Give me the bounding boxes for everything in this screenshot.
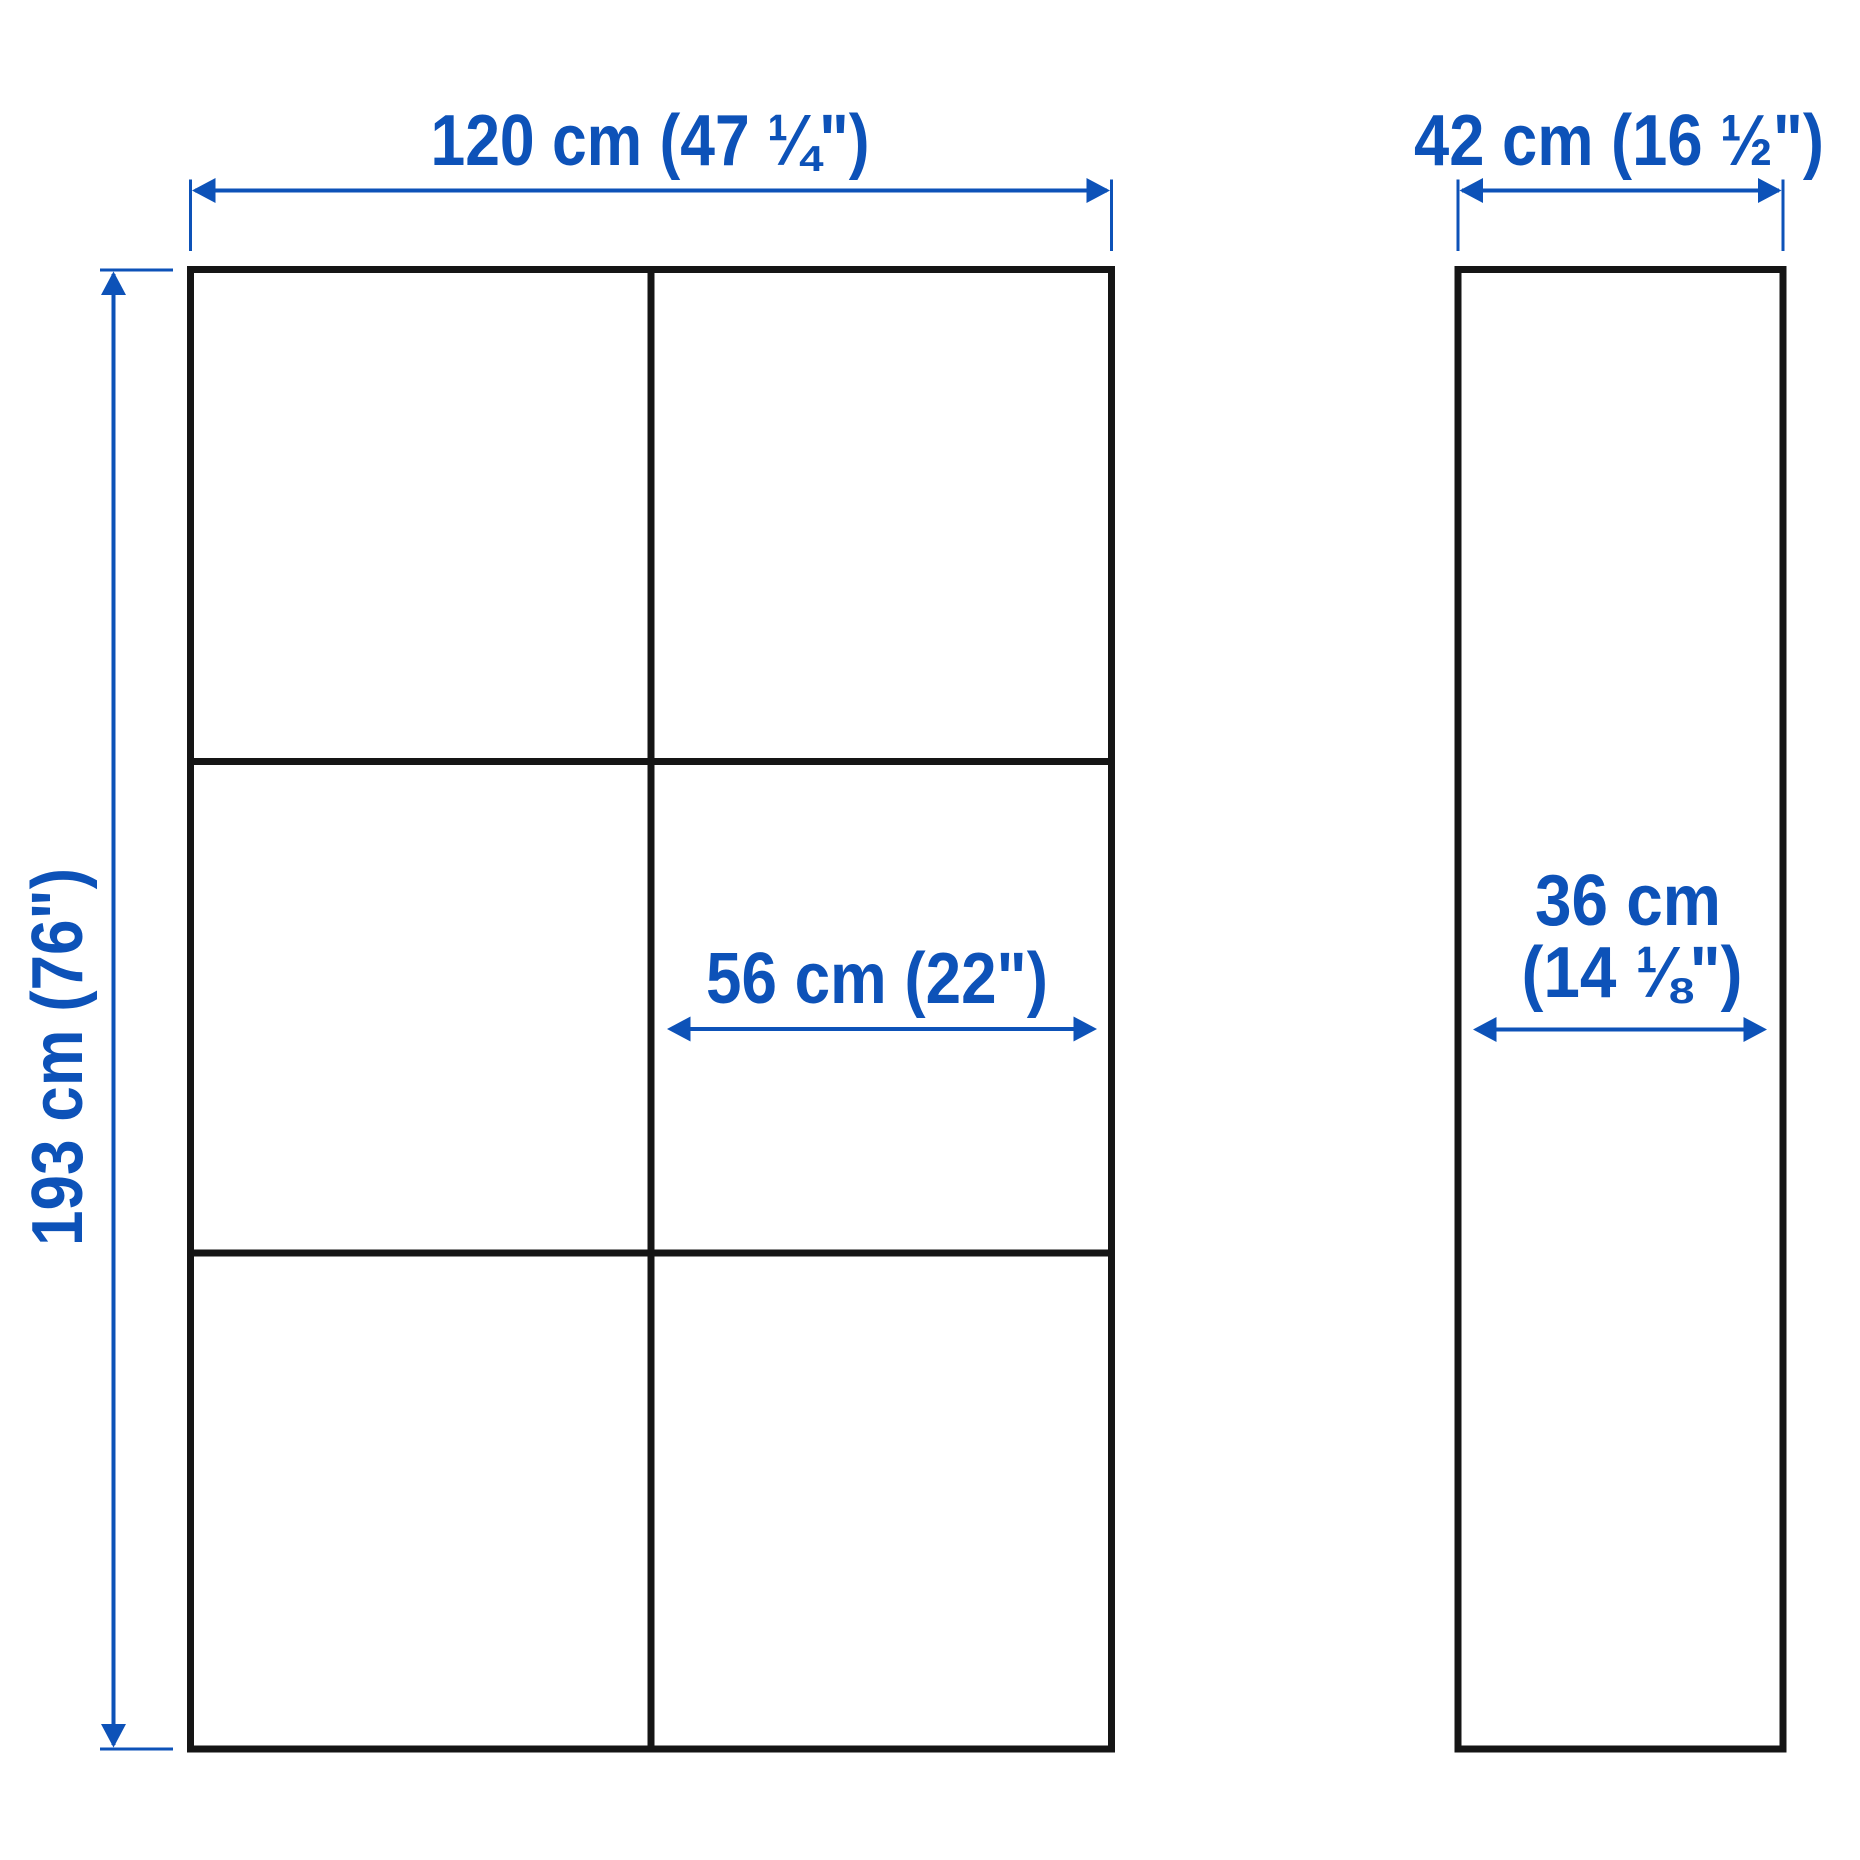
svg-text:36 cm: 36 cm (1535, 861, 1721, 941)
svg-text:120 cm (47 ¼"): 120 cm (47 ¼") (431, 101, 870, 181)
svg-text:56 cm (22"): 56 cm (22") (706, 939, 1048, 1019)
svg-text:193 cm (76"): 193 cm (76") (18, 868, 98, 1246)
svg-text:(14 ⅛"): (14 ⅛") (1522, 933, 1743, 1013)
svg-text:42 cm (16 ½"): 42 cm (16 ½") (1414, 101, 1824, 181)
